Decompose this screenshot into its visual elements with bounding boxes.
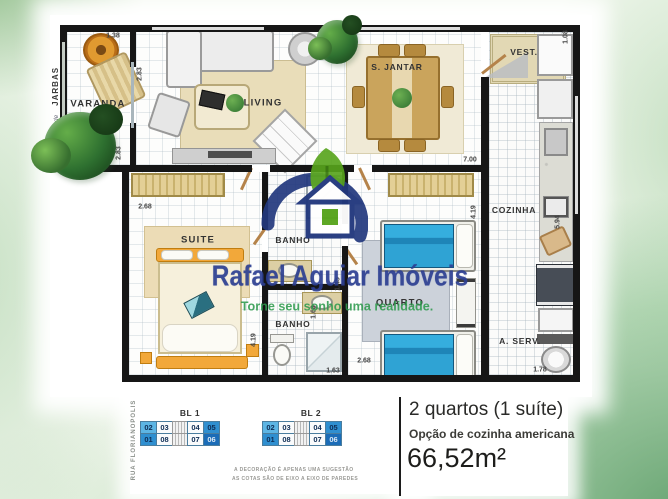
foot-bench xyxy=(156,356,248,369)
duvet xyxy=(162,324,238,352)
toilet-bowl xyxy=(273,344,291,366)
dim-suite-width: 2.68 xyxy=(138,204,152,211)
wardrobe xyxy=(388,173,474,197)
leaf-house-logo-icon xyxy=(250,146,368,254)
dim-aserv-width: 1.78 xyxy=(533,367,547,374)
wall-left-lower xyxy=(122,165,129,382)
toilet-tank xyxy=(270,334,294,343)
unit-cell: 07 xyxy=(187,433,204,446)
pillow xyxy=(197,250,229,260)
room-label-jantar: S. JANTAR xyxy=(371,62,422,72)
dim-quarto-width: 2.68 xyxy=(357,358,371,365)
summary-divider xyxy=(399,397,401,496)
varanda-glass xyxy=(131,62,134,128)
stairs-icon xyxy=(172,433,188,446)
unit-cell: 06 xyxy=(325,433,342,446)
sofa-chaise xyxy=(166,30,202,88)
keyplan-row: 01 08 07 06 xyxy=(140,434,219,446)
block-2-keyplan: 02 03 04 05 01 08 07 06 xyxy=(262,421,341,446)
corner-plant xyxy=(44,112,116,180)
shelf xyxy=(537,334,573,344)
unit-cell: 01 xyxy=(140,433,157,446)
dim-banho2-width: 1.63 xyxy=(326,368,340,375)
block-1-keyplan: 02 03 04 05 01 08 07 06 xyxy=(140,421,219,446)
summary-title: 2 quartos (1 suíte) xyxy=(409,399,563,421)
floorplan-flyer: VARANDA LIVING S. JANTAR VEST. COZINHA S… xyxy=(0,0,668,499)
cabinet xyxy=(537,79,573,119)
dining-chair xyxy=(352,86,365,108)
wall-cozinha-west xyxy=(481,77,489,382)
dim-varanda-top: 1.38 xyxy=(106,33,120,40)
dim-quarto-height: 4.19 xyxy=(471,205,478,219)
cabinet xyxy=(538,308,574,332)
tv xyxy=(208,151,252,158)
room-label-cozinha: COZINHA xyxy=(492,205,536,215)
dim-cozinha-height: 5.94 xyxy=(555,215,562,229)
dim-jantar-width: 7.00 xyxy=(463,157,477,164)
pillow xyxy=(161,250,193,260)
wall-mid-c xyxy=(372,165,482,172)
unit-cell: 01 xyxy=(262,433,279,446)
unit-cell: 06 xyxy=(203,433,220,446)
dim-suite-height: 4.19 xyxy=(251,333,258,347)
stairs-icon xyxy=(294,433,310,446)
shower xyxy=(306,332,342,372)
table-plant xyxy=(226,94,244,112)
living-window xyxy=(152,27,264,30)
dining-chair xyxy=(404,139,426,152)
pillow xyxy=(456,334,473,378)
block-1-title: BL 1 xyxy=(180,408,200,418)
summary-subtitle: Opção de cozinha americana xyxy=(409,427,574,441)
wardrobe xyxy=(131,173,225,197)
keyplan-row: 01 08 07 06 xyxy=(262,434,341,446)
room-label-aserv: A. SERV. xyxy=(499,336,541,346)
dim-varanda-bottom: 2.83 xyxy=(116,146,123,160)
sink xyxy=(544,128,568,156)
washer-stack xyxy=(536,264,574,306)
room-label-vest: VEST. xyxy=(510,47,538,57)
watermark-brand: Rafael Aguiar Imóveis xyxy=(212,261,469,294)
wall-varanda-living-a xyxy=(130,25,136,67)
room-label-living: LIVING xyxy=(244,98,283,109)
unit-cell: 08 xyxy=(156,433,173,446)
street-name-bottom-left: RUA FLORIANOPOLIS xyxy=(131,400,137,481)
cozinha-window xyxy=(575,96,578,214)
summary-area: 66,52m² xyxy=(407,443,506,474)
dim-vest-side: 1.08 xyxy=(563,30,570,44)
block-2-title: BL 2 xyxy=(301,408,321,418)
room-label-suite: SUITE xyxy=(181,235,215,246)
disclaimer-line-2: AS COTAS SÃO DE EIXO A EIXO DE PAREDES xyxy=(232,476,358,482)
street-big-text: JARBAS xyxy=(51,67,60,106)
nightstand xyxy=(140,352,152,364)
unit-cell: 07 xyxy=(309,433,326,446)
dining-chair xyxy=(378,139,400,152)
disclaimer-line-1: A DECORAÇÃO É APENAS UMA SUGESTÃO xyxy=(234,467,354,473)
living-plant xyxy=(316,20,358,64)
dining-chair xyxy=(441,86,454,108)
room-label-banho2: BANHO xyxy=(275,319,310,329)
jantar-window xyxy=(352,27,460,30)
watermark-tagline: Torne seu sonho uma realidade. xyxy=(241,299,433,314)
dim-varanda-wall: 2.83 xyxy=(137,67,144,81)
wall-bottom xyxy=(122,375,580,382)
wall-mid-a xyxy=(129,165,252,172)
dining-chair xyxy=(378,44,400,57)
single-bed-blanket xyxy=(384,334,454,378)
dining-chair xyxy=(404,44,426,57)
centerpiece-plant xyxy=(392,88,412,108)
unit-cell: 08 xyxy=(278,433,295,446)
